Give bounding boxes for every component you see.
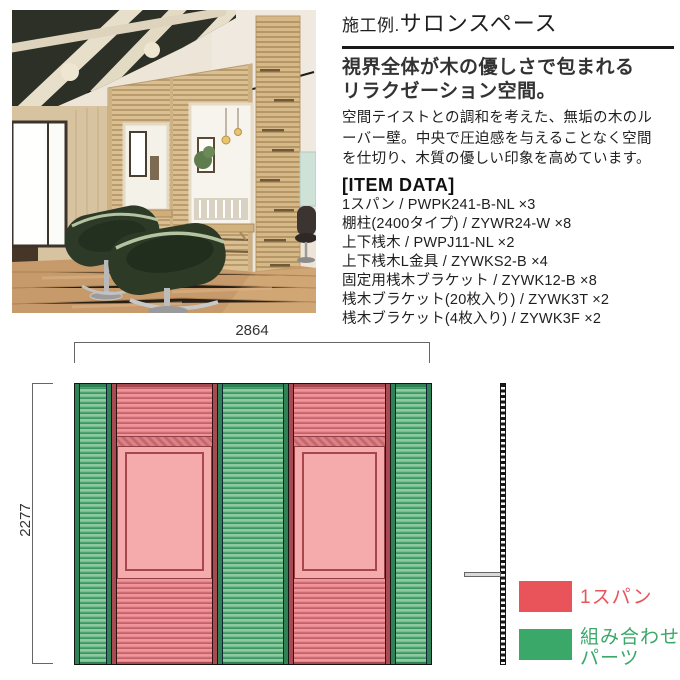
body-line: 空間テイストとの調和を考えた、無垢の木のル: [342, 108, 676, 129]
panel-one-span: [289, 384, 389, 664]
legend-label-one-span: 1スパン: [580, 587, 653, 608]
width-dimension-label: 2864: [74, 322, 430, 339]
item-data-heading: [ITEM DATA]: [342, 175, 676, 196]
subtitle-line2: リラクゼーション空間。: [342, 80, 676, 104]
page-title-prefix: 施工例.: [342, 16, 400, 35]
body-line: を仕切り、木質の優しい印象を高めています。: [342, 149, 676, 170]
mirror-panel: [117, 447, 211, 579]
item-line: 固定用桟木ブラケット / ZYWK12-B ×8: [342, 272, 676, 291]
panel-combination-parts: [218, 384, 289, 664]
subtitle: 視界全体が木の優しさで包まれる リラクゼーション空間。: [342, 56, 676, 104]
item-line: 上下桟木 / PWPJ11-NL ×2: [342, 234, 676, 253]
legend-swatch-one-span: [519, 581, 572, 612]
height-dimension-line: [32, 383, 53, 664]
width-dimension-line: [74, 342, 430, 363]
page-title-main: サロンスペース: [400, 11, 558, 36]
panel-combination-parts: [391, 384, 431, 664]
item-line: 1スパン / PWPK241-B-NL ×3: [342, 196, 676, 215]
page-title: 施工例.サロンスペース: [342, 4, 676, 38]
description-column: 施工例.サロンスペース 視界全体が木の優しさで包まれる リラクゼーション空間。 …: [342, 4, 676, 329]
salon-photo: [12, 10, 316, 313]
mirror-frame: [302, 452, 376, 571]
subtitle-line1: 視界全体が木の優しさで包まれる: [342, 56, 676, 80]
side-view-bracket-arm: [464, 572, 501, 577]
body-line: ーバー壁。中央で圧迫感を与えることなく空間: [342, 129, 676, 150]
mirror-top-hatch: [117, 436, 211, 447]
side-view-post: [500, 383, 506, 665]
item-line: 上下桟木L金具 / ZYWKS2-B ×4: [342, 253, 676, 272]
mirror-top-hatch: [294, 436, 384, 447]
wall-elevation-diagram: [74, 383, 432, 665]
height-dimension-label: 2277: [17, 488, 35, 552]
item-line: 棚柱(2400タイプ) / ZYWR24-W ×8: [342, 215, 676, 234]
panel-combination-parts: [75, 384, 111, 664]
body-text: 空間テイストとの調和を考えた、無垢の木のル ーバー壁。中央で圧迫感を与えることな…: [342, 108, 676, 170]
legend-label-combination-parts: 組み合わせ パーツ: [580, 627, 680, 669]
legend-swatch-combination-parts: [519, 629, 572, 660]
mirror-panel: [294, 447, 384, 579]
mirror-zone: [117, 436, 211, 579]
item-line: 桟木ブラケット(20枚入り) / ZYWK3T ×2: [342, 291, 676, 310]
legend-label-combination-line2: パーツ: [580, 648, 680, 669]
item-data-list: 1スパン / PWPK241-B-NL ×3 棚柱(2400タイプ) / ZYW…: [342, 196, 676, 329]
mirror-frame: [125, 452, 203, 571]
mirror-zone: [294, 436, 384, 579]
title-divider: [342, 46, 674, 49]
legend-label-combination-line1: 組み合わせ: [580, 627, 680, 648]
panel-one-span: [112, 384, 216, 664]
page: 施工例.サロンスペース 視界全体が木の優しさで包まれる リラクゼーション空間。 …: [0, 0, 680, 680]
